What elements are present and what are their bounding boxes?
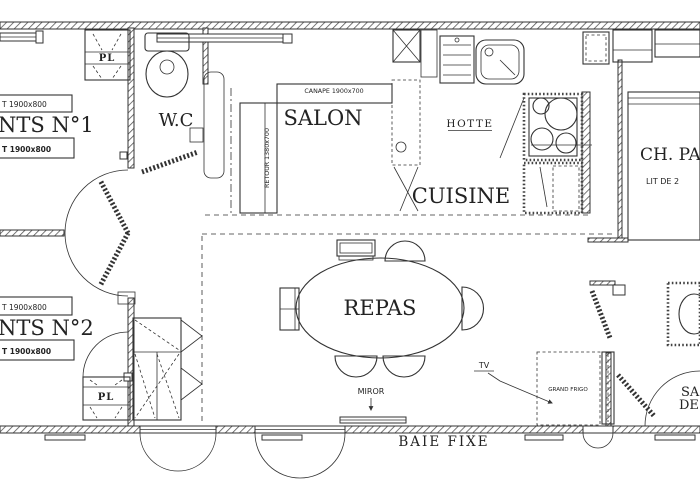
cuisine-label: CUISINE [412, 184, 510, 208]
hall-wall-stub-top [588, 238, 628, 242]
repas-label: REPAS [344, 296, 417, 320]
hotte-label: HOTTE [446, 118, 493, 130]
pocket-door-panel [204, 72, 224, 178]
window-cap [36, 31, 43, 43]
washbasin [679, 294, 700, 334]
chair-bottom-1 [335, 356, 377, 377]
top-right-cabinets [583, 30, 700, 64]
foot-4 [655, 435, 695, 440]
bedroom1-door-arc [65, 170, 128, 233]
tv-leader-arrow [488, 373, 552, 403]
chair-right [462, 287, 484, 330]
highchair [337, 240, 375, 256]
faucet [485, 48, 493, 56]
parents-bed-label: LIT DE 2 [646, 177, 679, 186]
bedroom1-door-leaf [100, 180, 128, 233]
bathroom-wall [606, 353, 611, 426]
wc-door-leaf [142, 152, 198, 172]
kitchen-right-wall [582, 92, 590, 213]
bed2-room1-label: T 1900x800 [2, 145, 51, 154]
sofa-return [240, 103, 277, 213]
bedroom2-door-leaf [100, 233, 128, 286]
entry-cabinet [583, 32, 609, 64]
sink [476, 40, 524, 84]
salon: CANAPE 1900x700 RETOUR 1380x700 SALON [204, 72, 392, 213]
canape-label: CANAPE 1900x700 [304, 88, 363, 95]
bed1-room2-label: T 1900x800 [1, 303, 47, 312]
washbasin-counter [668, 283, 700, 345]
tall-cabinet [421, 30, 437, 77]
placard-top: PL [85, 30, 130, 80]
enfants2-label: NTS N°2 [0, 316, 94, 340]
left-partition-upper [128, 28, 134, 168]
bedroom2-door-arc [65, 233, 128, 296]
foot-2 [262, 435, 302, 440]
exterior-door-arc-right [583, 433, 613, 448]
door-threshold-right [583, 426, 613, 433]
retour-label: RETOUR 1380x700 [264, 128, 271, 188]
enfants1-label: NTS N°1 [0, 113, 94, 137]
burner-mid-2 [556, 133, 576, 153]
burner-mid-1 [531, 128, 553, 150]
toilet-flush [160, 60, 174, 74]
cuisine: HOTTE CUISINE [392, 30, 592, 213]
parents-room-wall [618, 60, 622, 240]
wardrobe-1 [613, 30, 652, 62]
salon-label: SALON [283, 106, 362, 130]
fridge-column [392, 80, 420, 165]
wardrobe-2 [655, 30, 700, 57]
baie-fixe-label: BAIE FIXE [398, 434, 489, 450]
frigo-tv: GRAND FRIGO TV [474, 352, 614, 425]
foot-3 [525, 435, 563, 440]
children-rooms: T 1900x800 NTS N°1 T 1900x800 T 1900x800… [0, 95, 94, 360]
drainer [440, 36, 474, 83]
kitchen-swing-line [500, 98, 524, 158]
parents-label: CH. PA [640, 145, 700, 165]
hall-door-box [613, 285, 625, 295]
bottom-left-units: PL [83, 292, 202, 420]
bathroom-label-line2: DE [679, 398, 699, 413]
tv-label: TV [478, 361, 490, 370]
bed1-room1-label: T 1900x800 [1, 100, 47, 109]
top-wall [0, 22, 700, 29]
hall-door-leaf-1 [592, 291, 610, 338]
floor-plan: W.C PL CANAPE 1900x700 RETOUR 1380x700 S… [0, 0, 700, 500]
foot-1 [45, 435, 85, 440]
wc-room: W.C [145, 33, 203, 142]
parents-room: CH. PA LIT DE 2 [628, 92, 700, 240]
shelf-door-fans [181, 320, 202, 400]
wc-label: W.C [159, 110, 194, 131]
bedrooms-divider-wall [0, 230, 64, 236]
window-bracket [283, 34, 292, 43]
burner-large [545, 98, 577, 130]
bed2-room2-label: T 1900x800 [2, 347, 51, 356]
exterior-door-arc-left [140, 433, 216, 471]
floor-plan-drawing: W.C PL CANAPE 1900x700 RETOUR 1380x700 S… [0, 0, 700, 500]
bathroom: SA DE [668, 283, 700, 413]
hall-door-leaf-2 [618, 375, 655, 417]
repas: REPAS MIROR [280, 240, 484, 410]
wc-door-hinge [120, 152, 127, 159]
placard-top-label: PL [99, 53, 116, 64]
placard-bottom-label: PL [98, 392, 115, 403]
hall-wall-stub-mid [590, 281, 615, 285]
grand-frigo-label: GRAND FRIGO [548, 387, 588, 393]
miror-label: MIROR [358, 387, 385, 396]
parents-bed [628, 92, 700, 240]
chair-bottom-2 [383, 356, 425, 377]
